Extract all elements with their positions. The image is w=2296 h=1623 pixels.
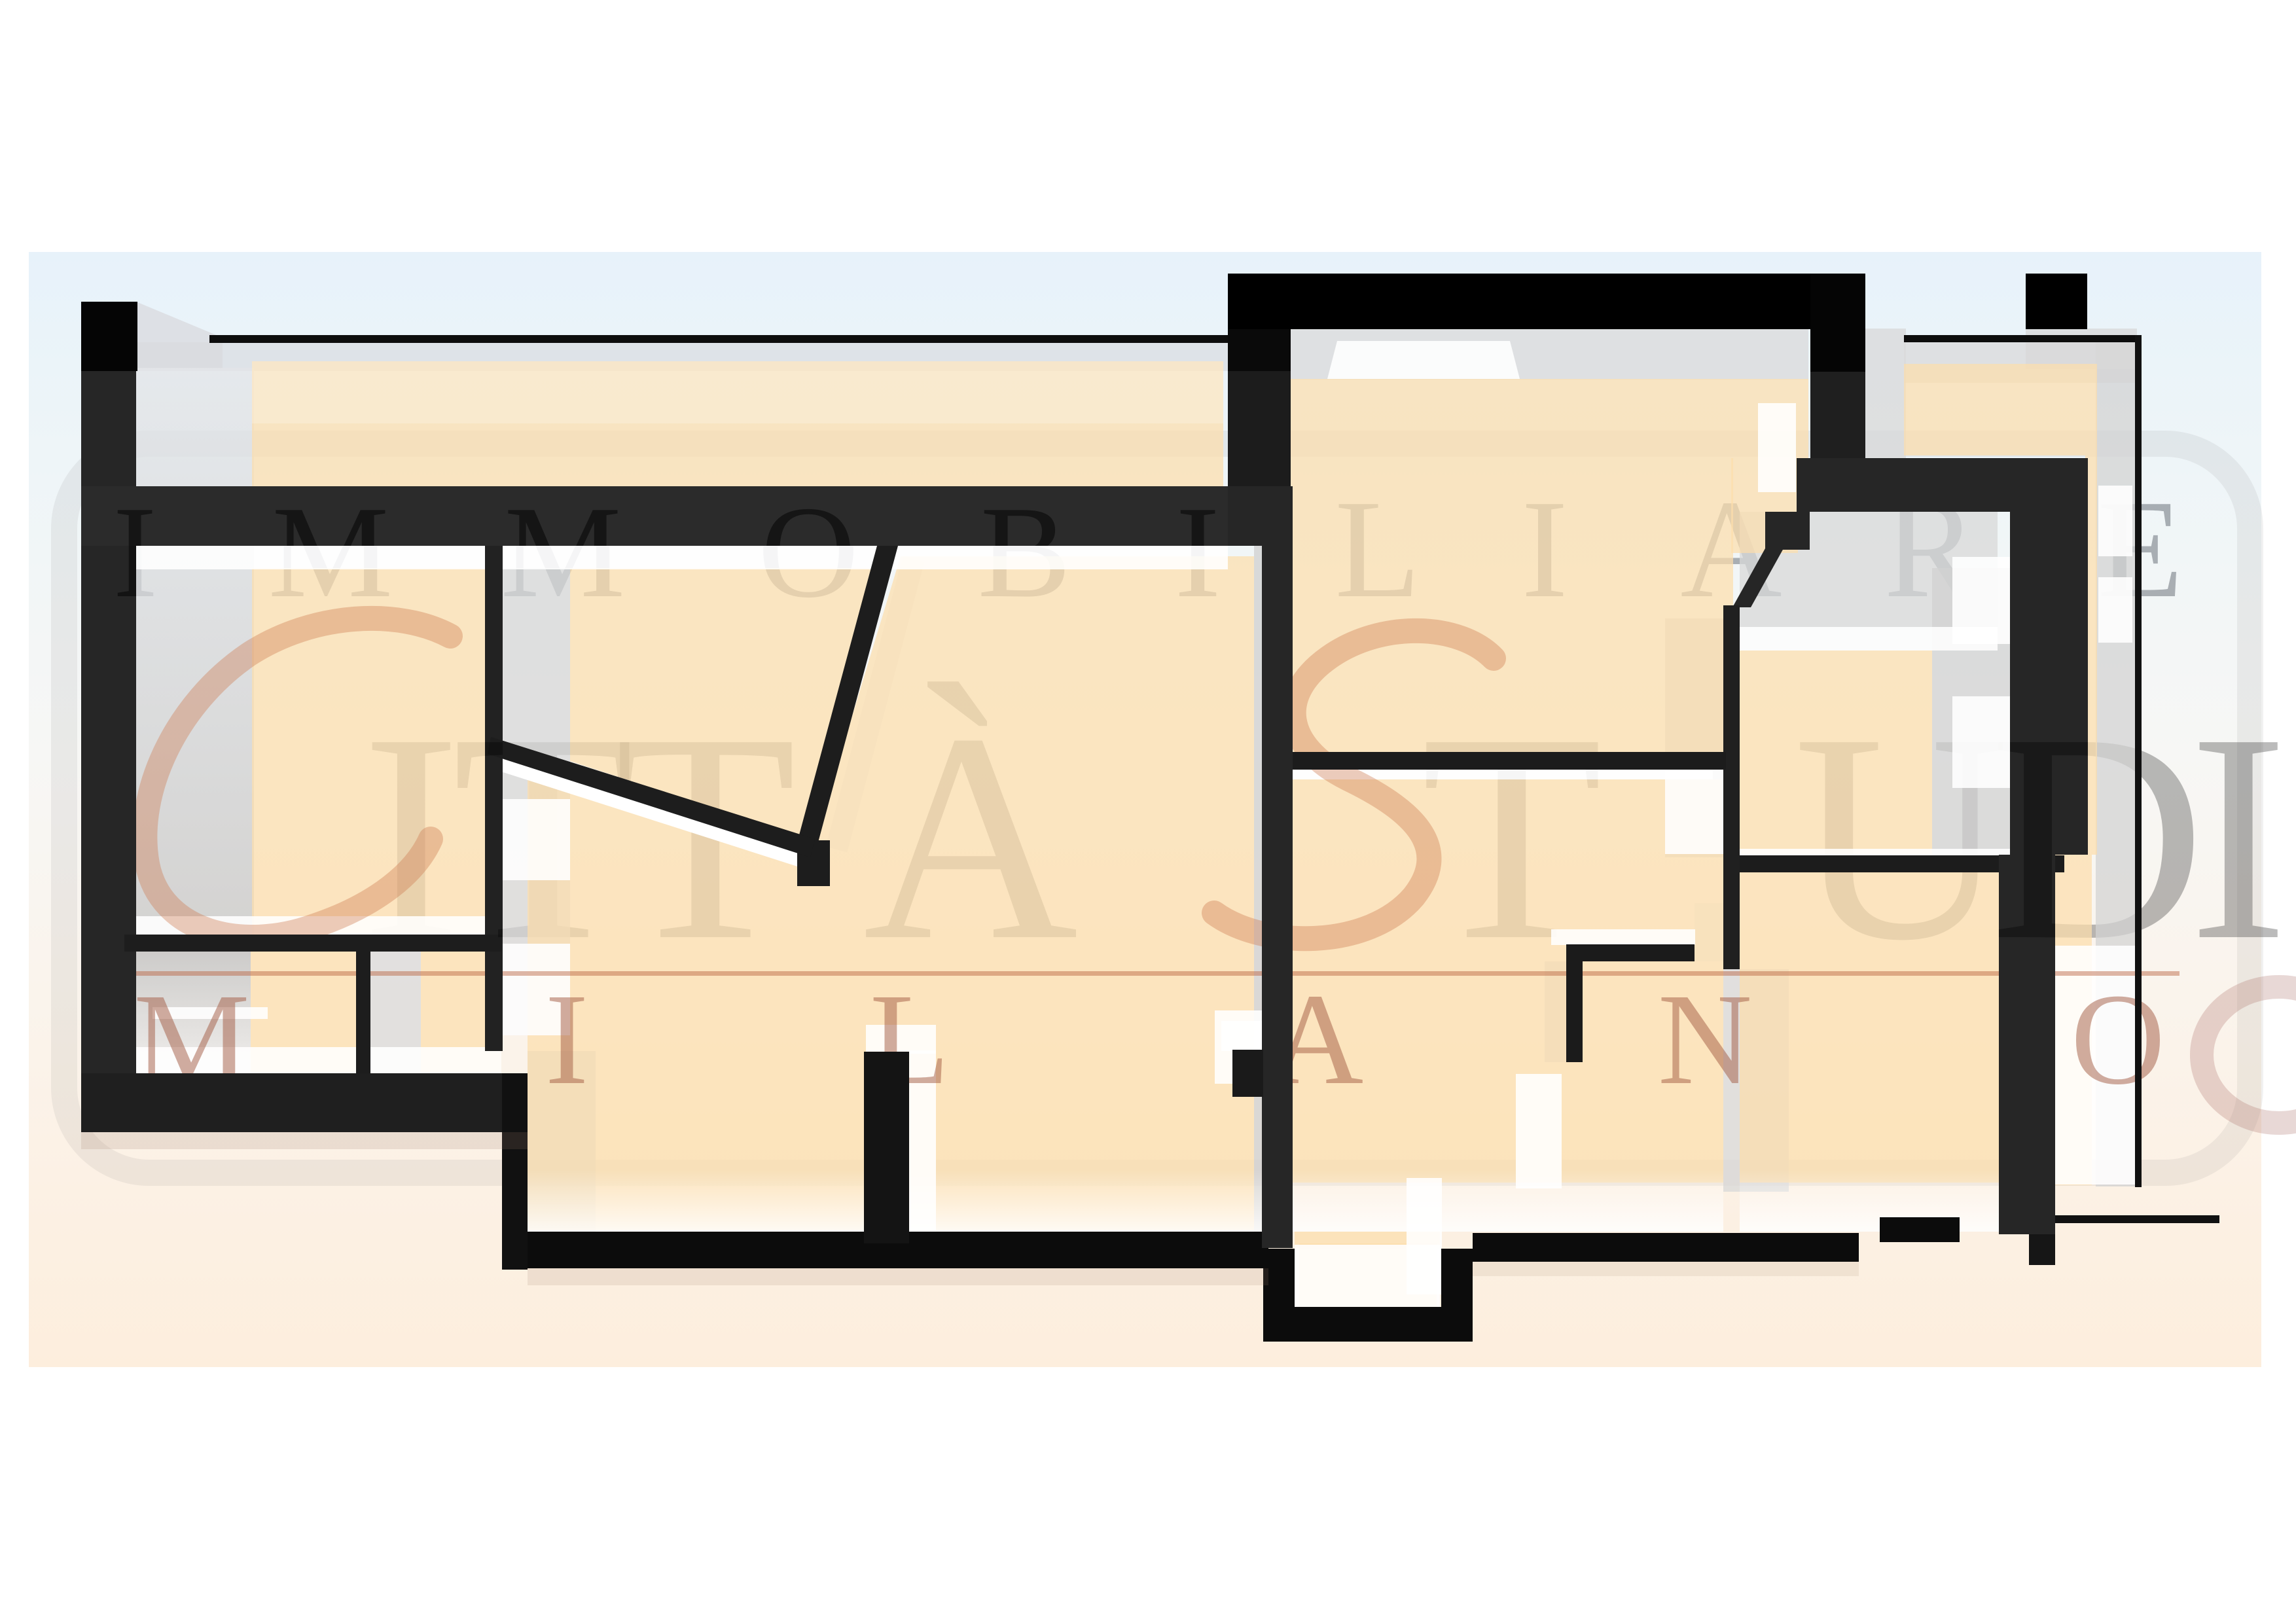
- svg-text:N: N: [1658, 967, 1752, 1112]
- svg-text:I: I: [545, 967, 589, 1112]
- svg-text:I: I: [2189, 673, 2288, 1002]
- svg-text:O: O: [2071, 967, 2165, 1112]
